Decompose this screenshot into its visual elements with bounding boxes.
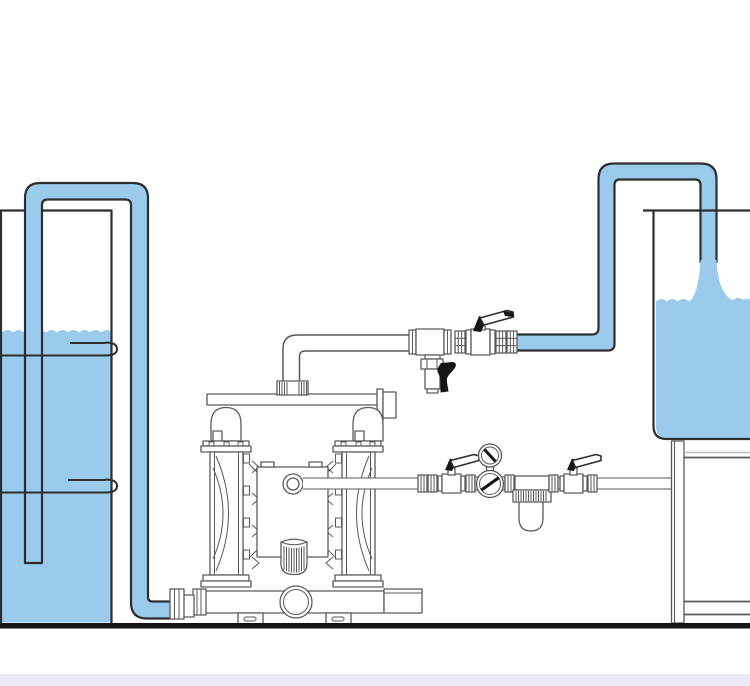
double-diaphragm-pump: [183, 381, 422, 624]
discharge-fittings: [409, 311, 517, 394]
discharge-pipe: [283, 335, 410, 383]
pump-system-illustration: [0, 0, 750, 686]
stand-leg: [672, 441, 685, 623]
supply-drum: [0, 211, 113, 624]
pipe-union: [455, 331, 465, 353]
tee-fitting: [409, 329, 456, 393]
suction-coupling: [170, 589, 184, 619]
pump-inlet-port: [280, 586, 312, 618]
pipe-union: [496, 331, 517, 353]
air-regulator: [475, 444, 505, 498]
drum-liquid: [2, 330, 112, 623]
illustration-canvas: [0, 0, 750, 686]
tank-stand: [672, 441, 750, 623]
receiving-tank: [643, 211, 750, 440]
air-filter: [513, 476, 551, 531]
tank-liquid-with-pour: [656, 260, 750, 439]
pump-muffler: [281, 539, 307, 574]
ground-line: [0, 623, 750, 629]
pump-foot: [326, 613, 351, 624]
pump-discharge-port: [277, 381, 308, 395]
filter-bowl: [519, 502, 543, 531]
footer-band: [0, 674, 750, 686]
pump-foot: [238, 613, 263, 624]
